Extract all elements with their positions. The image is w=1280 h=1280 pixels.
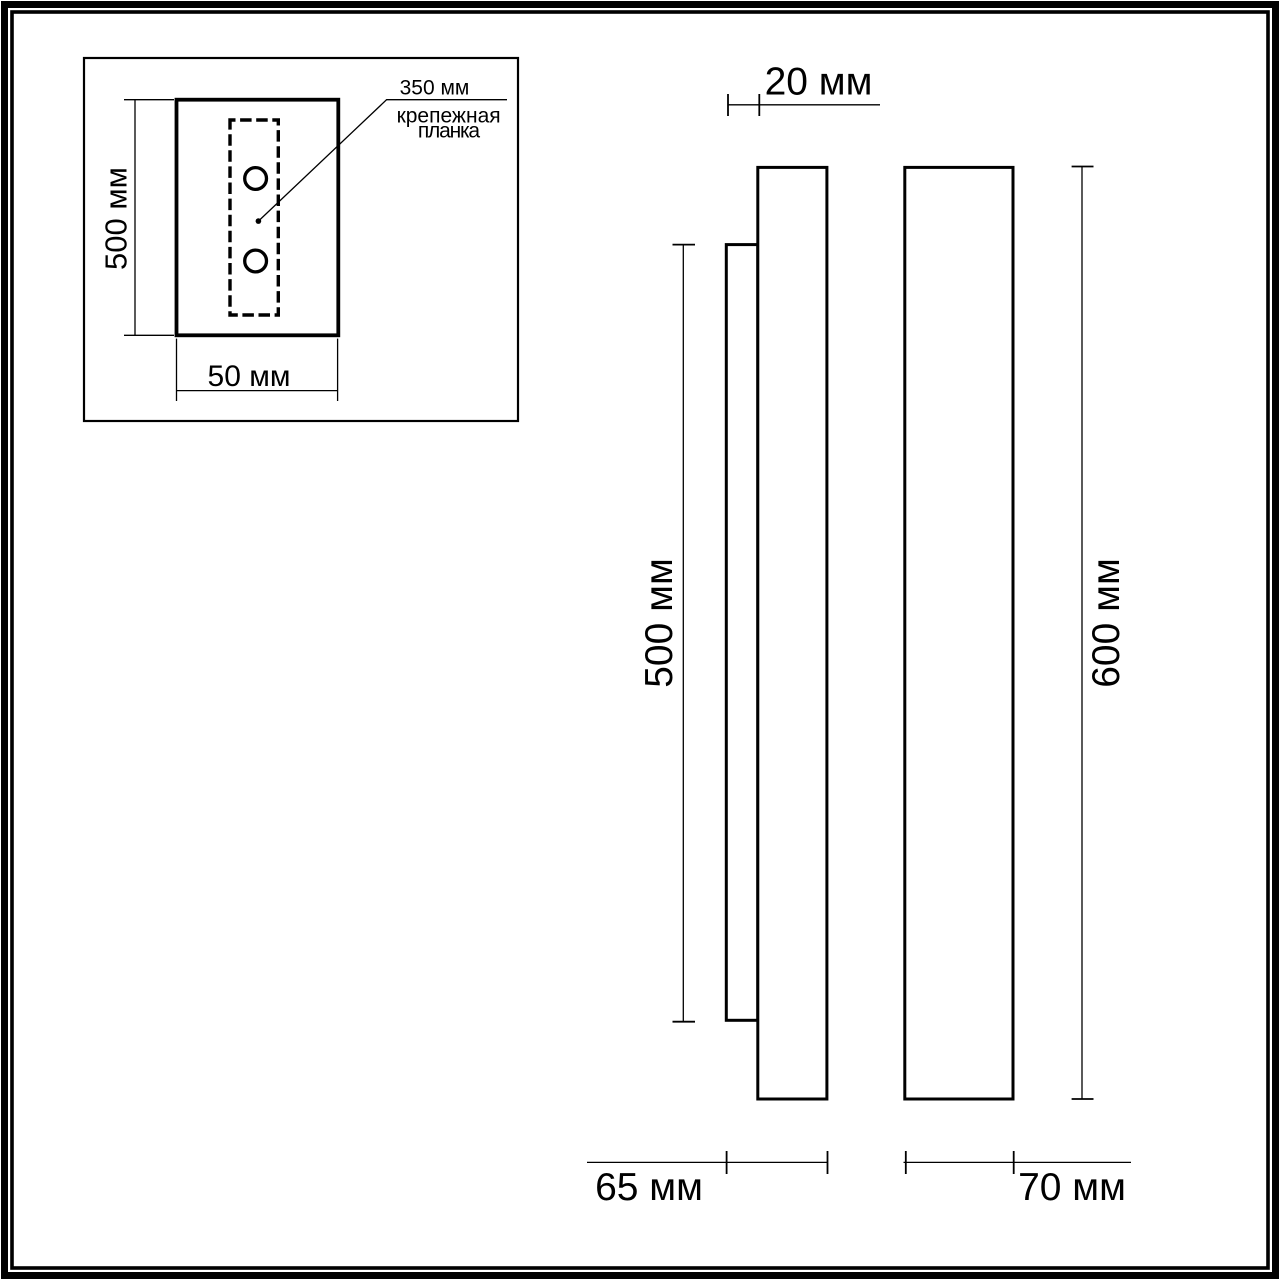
svg-text:500 мм: 500 мм <box>638 558 681 688</box>
svg-text:20 мм: 20 мм <box>765 60 873 103</box>
svg-text:70 мм: 70 мм <box>1018 1166 1126 1209</box>
svg-text:50 мм: 50 мм <box>208 360 291 393</box>
svg-text:65 мм: 65 мм <box>595 1166 703 1209</box>
svg-text:350 мм: 350 мм <box>400 77 470 100</box>
svg-text:планка: планка <box>418 120 481 143</box>
svg-text:500 мм: 500 мм <box>99 167 134 270</box>
svg-text:600 мм: 600 мм <box>1085 558 1128 688</box>
